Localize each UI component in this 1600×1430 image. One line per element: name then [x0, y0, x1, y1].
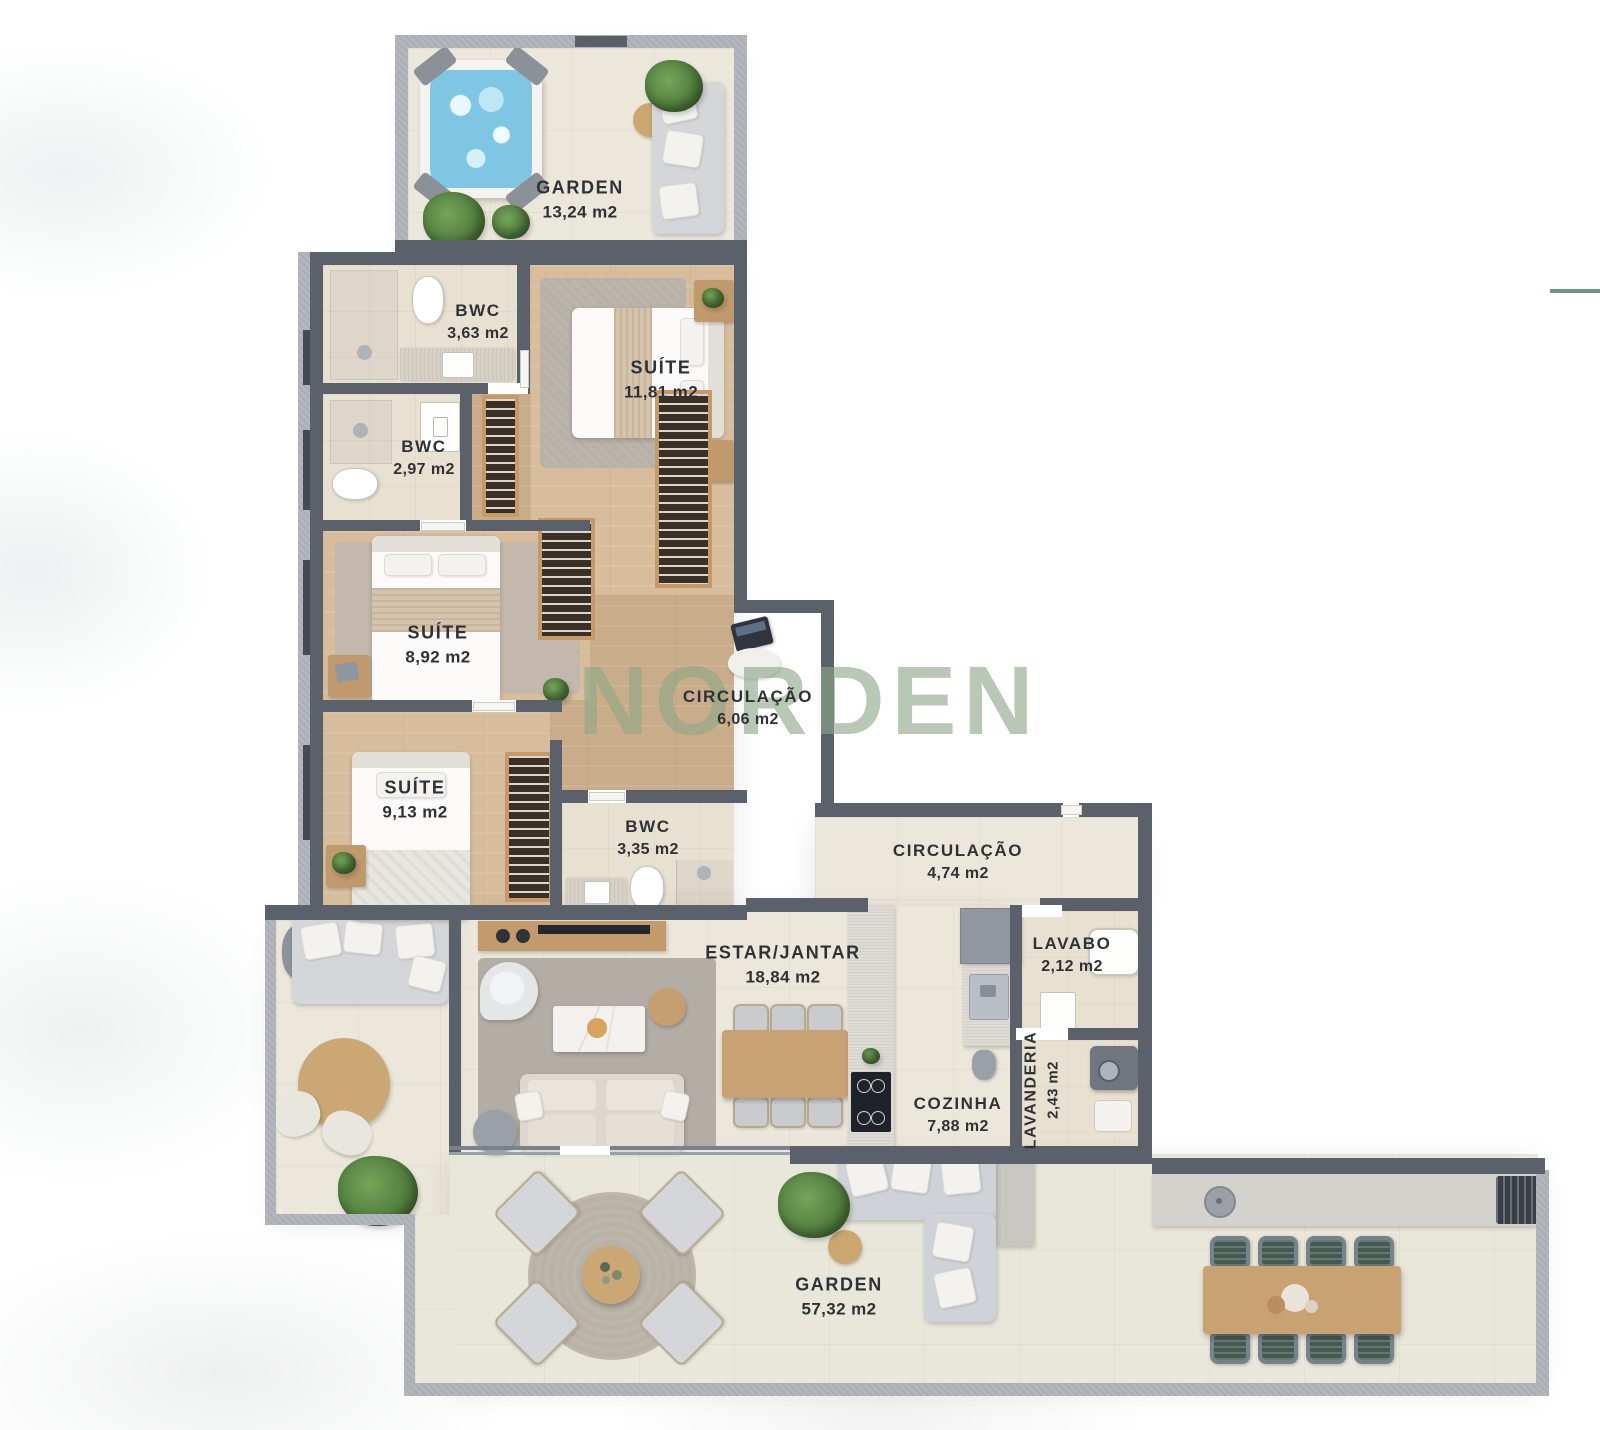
room-label-circulacao-2: CIRCULAÇÃO 4,74 m2	[893, 839, 1023, 885]
wall-estar-top	[746, 898, 868, 912]
wall-garden-outdoor-top	[1152, 1158, 1545, 1174]
plant	[492, 205, 530, 239]
plant	[862, 1048, 880, 1064]
toilet-icon	[332, 468, 378, 500]
room-label-cozinha: COZINHA 7,88 m2	[914, 1092, 1003, 1138]
room-label-bwc-3: BWC 3,35 m2	[617, 815, 679, 861]
window-slit	[303, 330, 310, 385]
plant	[543, 678, 569, 702]
floor-garden-main-left	[415, 1214, 455, 1383]
outdoor-chair	[1258, 1330, 1298, 1364]
plant	[778, 1172, 850, 1238]
lavabo-cabinet	[1040, 992, 1076, 1030]
laundry-basket	[1094, 1100, 1132, 1132]
garden-round-table	[582, 1246, 640, 1304]
room-label-lavanderia: LAVANDERIA 2,43 m2	[1020, 1031, 1063, 1150]
terrace-sofa	[292, 914, 448, 1004]
room-label-suite-2: SUÍTE 8,92 m2	[405, 621, 470, 670]
outdoor-dining-table	[1203, 1266, 1401, 1334]
outdoor-chair	[1354, 1330, 1394, 1364]
dining-chair	[807, 1096, 843, 1128]
closet	[655, 390, 712, 588]
coffee-table	[553, 1006, 645, 1052]
room-label-circulacao-1: CIRCULAÇÃO 6,06 m2	[683, 685, 813, 731]
wall-terrace-bottom	[265, 1214, 415, 1225]
wall-wing-left	[310, 252, 323, 918]
wall-terrace-left	[265, 905, 276, 1225]
wall-wing-bottom	[265, 905, 747, 920]
door-leaf-suite3	[473, 702, 515, 711]
wall-garden-main-right	[1536, 1170, 1549, 1390]
vanity-bwc1	[400, 348, 514, 380]
outdoor-chair	[1210, 1330, 1250, 1364]
wall-garden-main-left	[404, 1214, 415, 1394]
shower	[676, 860, 733, 906]
side-table	[828, 1230, 862, 1264]
door-leaf-bwc1	[520, 350, 529, 388]
wall-living-left	[449, 920, 461, 1154]
wall-garden-left	[395, 35, 408, 253]
closet	[538, 518, 595, 640]
room-label-suite-1: SUÍTE 11,81 m2	[624, 356, 698, 405]
toilet-icon	[630, 866, 664, 910]
window-slit	[303, 560, 310, 655]
outdoor-chair	[1258, 1236, 1298, 1270]
door-leaf-entry	[1061, 805, 1082, 815]
wall-garden-gate	[575, 36, 627, 47]
plant	[702, 288, 724, 308]
wall-right-outer	[1138, 803, 1152, 1163]
dining-chair	[733, 1096, 769, 1128]
closet	[505, 752, 553, 902]
room-label-bwc-2: BWC 2,97 m2	[393, 435, 455, 481]
shower	[330, 270, 398, 380]
room-label-garden-rooftop: GARDEN 13,24 m2	[536, 176, 624, 225]
wall-circulation2-top	[815, 803, 1152, 817]
door-leaf-bwc3	[589, 792, 625, 801]
wall-garden-right	[734, 35, 747, 253]
vanity-bwc3	[566, 878, 626, 906]
tv-console	[478, 921, 666, 951]
outdoor-chair	[1210, 1236, 1250, 1270]
wall-bwc2-right	[460, 394, 472, 527]
room-label-garden-main: GARDEN 57,32 m2	[795, 1273, 883, 1322]
sliding-door-gap	[560, 1146, 610, 1155]
washing-machine	[1090, 1046, 1138, 1090]
side-table	[648, 988, 686, 1026]
closet	[482, 395, 519, 517]
glass-door-track-outer	[449, 1146, 790, 1150]
room-label-estar-jantar: ESTAR/JANTAR 18,84 m2	[705, 941, 861, 990]
wall-living-bottom-right	[790, 1146, 1152, 1164]
door-leaf-suite2	[421, 522, 465, 531]
garden-sofa-vertical	[924, 1214, 996, 1322]
wall-garden-top	[395, 35, 747, 48]
window-slit	[303, 430, 310, 510]
toilet-icon	[412, 276, 444, 324]
wall-suite3-right	[550, 740, 562, 905]
room-label-lavabo: LAVABO 2,12 m2	[1033, 932, 1112, 978]
bbq-grill	[1496, 1176, 1540, 1224]
glass-door-track-inner	[449, 1152, 790, 1155]
plant	[332, 852, 356, 874]
shower	[330, 400, 392, 464]
kitchen-counter	[963, 966, 1013, 1046]
armchair	[480, 962, 538, 1020]
door-gap-lavabo	[1022, 905, 1062, 917]
window-slit	[303, 745, 310, 840]
wall-step-horizontal	[734, 600, 834, 613]
room-label-bwc-1: BWC 3,63 m2	[447, 299, 509, 345]
room-label-suite-3: SUÍTE 9,13 m2	[382, 776, 447, 825]
floor-plan-page: { "watermark": "NORDEN", "accent_line_co…	[0, 0, 1600, 1430]
outdoor-counter	[1152, 1174, 1536, 1226]
garden-planter	[996, 1150, 1034, 1246]
outdoor-chair	[1306, 1236, 1346, 1270]
outdoor-chair	[1354, 1236, 1394, 1270]
wall-garden-main-bottom	[404, 1383, 1549, 1396]
outdoor-chair	[1306, 1330, 1346, 1364]
nightstand	[328, 655, 370, 697]
wall-suite2-bottom	[322, 700, 562, 712]
dining-chair	[770, 1096, 806, 1128]
living-sofa	[520, 1074, 684, 1152]
dining-table	[722, 1030, 848, 1098]
plant	[645, 60, 703, 112]
jacuzzi	[420, 60, 542, 198]
vase	[972, 1050, 996, 1080]
jacuzzi-water	[430, 70, 532, 188]
wall-wing-right-upper	[734, 252, 747, 612]
accent-line	[1550, 289, 1600, 293]
